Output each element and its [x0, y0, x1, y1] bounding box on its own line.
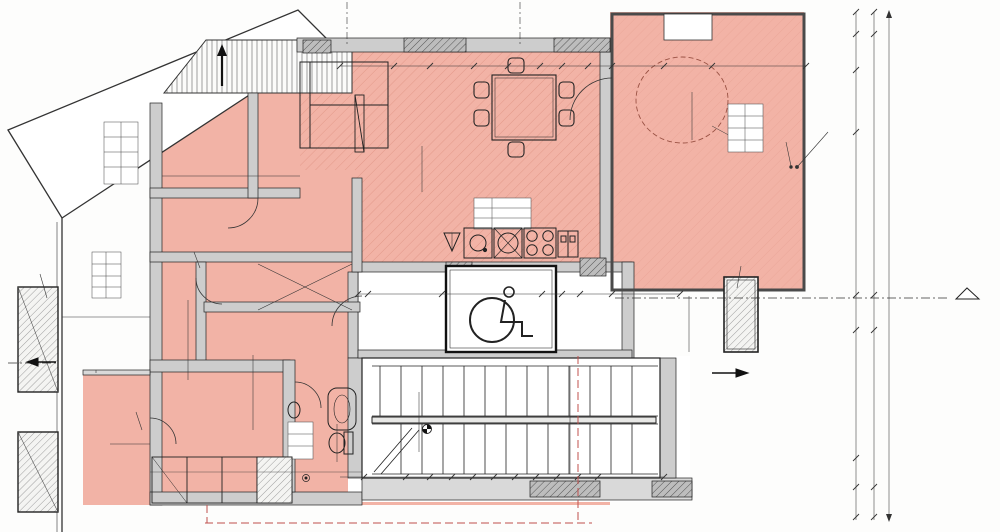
section-marker [956, 288, 979, 299]
staircase [362, 358, 660, 478]
elevator-shaft [446, 266, 556, 352]
level-marker [423, 425, 432, 434]
floor-plan-sheet [0, 0, 1000, 532]
floor-plan-drawing [0, 0, 1000, 532]
